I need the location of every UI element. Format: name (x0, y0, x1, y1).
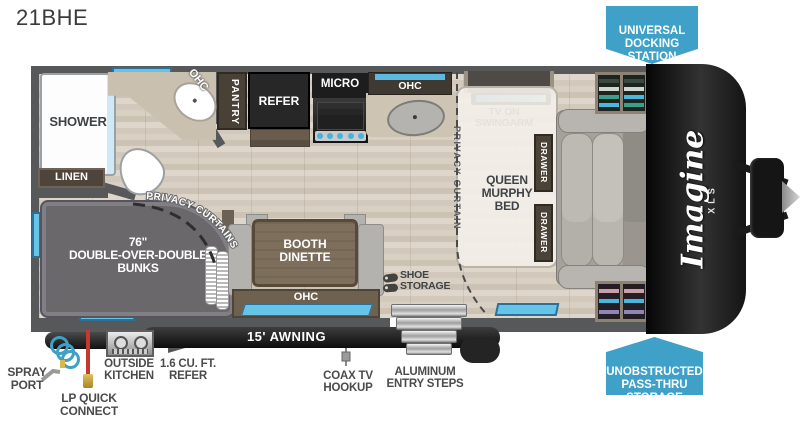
spray-port-label: SPRAY PORT (4, 366, 50, 392)
wardrobe-shelves (598, 75, 620, 111)
drawer-top: DRAWER (534, 134, 553, 192)
universal-docking-text: UNIVERSAL DOCKING STATION (619, 25, 685, 63)
burner-icon (134, 336, 148, 350)
shower-label: SHOWER (42, 115, 114, 129)
drawer-top-label: DRAWER (539, 142, 549, 183)
folded-clothes (599, 87, 619, 91)
dinette-window (241, 304, 373, 316)
burner-knob (327, 133, 333, 139)
brand-logo: Imagine XLS (676, 130, 717, 269)
refrigerator: REFER (248, 72, 310, 129)
folded-clothes (599, 103, 619, 107)
sofa (556, 110, 649, 286)
linen-label: LINEN (40, 171, 103, 183)
folded-clothes (599, 79, 619, 83)
burner-knob (337, 133, 343, 139)
burner-knob (317, 133, 323, 139)
dinette-ohc-label: OHC (234, 291, 378, 303)
micro-label: MICRO (312, 78, 368, 91)
folded-clothes (624, 299, 644, 303)
entry-step (401, 330, 457, 343)
spray-port-fitting (60, 360, 65, 368)
entry-steps-label: ALUMINUM ENTRY STEPS (378, 366, 472, 391)
propane-cover (750, 158, 784, 238)
folded-clothes (624, 79, 644, 83)
kitchen-ohc-label: OHC (369, 81, 451, 93)
lp-quick-connect-label: LP QUICK CONNECT (56, 392, 122, 418)
sofa-cushion (592, 133, 624, 267)
page-title: 21BHE (16, 5, 88, 31)
outside-refer-label: 1.6 CU. FT. REFER (158, 358, 218, 383)
oven-door (317, 102, 364, 130)
door-side-window (495, 303, 560, 316)
griddle-vents (112, 349, 148, 354)
lp-hose-icon (86, 330, 90, 376)
shoe-dot (385, 276, 388, 279)
entry-step (406, 343, 452, 355)
step-support (460, 337, 500, 363)
shoe-dot (385, 286, 388, 289)
wall-left (31, 66, 39, 332)
shoe-icon (383, 283, 399, 292)
folded-clothes (624, 103, 644, 107)
pass-thru-text: UNOBSTRUCTED PASS-THRU STORAGE (606, 366, 702, 404)
drawer-bottom: DRAWER (534, 204, 553, 262)
wardrobe-front-top (595, 72, 648, 114)
folded-clothes (599, 310, 619, 314)
pantry: PANTRY (217, 72, 247, 130)
burner-icon (114, 336, 128, 350)
outside-kitchen-label: OUTSIDE KITCHEN (100, 358, 158, 383)
wardrobe-shelves (623, 284, 645, 319)
wardrobe-shelves (623, 75, 645, 111)
folded-clothes (624, 87, 644, 91)
linen-cabinet: LINEN (38, 168, 105, 188)
awning-label: 15' AWNING (143, 330, 430, 344)
pass-thru-badge: UNOBSTRUCTED PASS-THRU STORAGE (606, 337, 703, 395)
range-oven (313, 98, 368, 143)
range-knob-strip (315, 131, 366, 141)
front-cap: Imagine XLS (646, 64, 746, 334)
folded-clothes (599, 289, 619, 293)
pantry-label: PANTRY (229, 79, 240, 125)
coax-jack-icon (342, 352, 350, 361)
shoe-storage-label: SHOE STORAGE (400, 270, 454, 293)
burner-knob (348, 133, 354, 139)
floorplan-canvas: 21BHE SHOWER LINEN OHC PANTRY REFER MICR… (0, 0, 800, 424)
folded-clothes (599, 95, 619, 99)
refer-base-cabinet (250, 129, 310, 147)
drawer-bottom-label: DRAWER (539, 212, 549, 253)
lp-fitting-icon (83, 374, 93, 388)
dinette-bench-right (358, 224, 384, 296)
coax-label: COAX TV HOOKUP (320, 370, 376, 395)
dinette-ohc: OHC (232, 289, 380, 318)
dinette-label: BOOTH DINETTE (255, 238, 355, 264)
hitch-coupler (782, 181, 800, 213)
entry-step (391, 304, 467, 317)
sofa-back (623, 131, 647, 267)
shower: SHOWER (40, 73, 116, 176)
folded-clothes (599, 299, 619, 303)
dinette-table: BOOTH DINETTE (252, 219, 358, 287)
outside-kitchen-griddle (106, 330, 154, 357)
privacy-curtain-label: PRIVACY CURTAIN (452, 126, 462, 230)
folded-clothes (624, 289, 644, 293)
entry-step (396, 317, 462, 330)
wall-bath-bottom (31, 188, 108, 198)
dinette-bench-left (228, 224, 252, 296)
brand-imagine: Imagine (676, 130, 711, 269)
microwave: MICRO (312, 73, 368, 98)
folded-clothes (624, 310, 644, 314)
kitchen-ohc: OHC (368, 72, 452, 95)
wardrobe-shelves (598, 284, 620, 319)
universal-docking-badge: UNIVERSAL DOCKING STATION (606, 6, 698, 64)
kitchen-sink-drain (413, 115, 417, 119)
sofa-cushion (561, 133, 593, 267)
folded-clothes (624, 95, 644, 99)
burner-knob (358, 133, 364, 139)
wardrobe-front-bottom (595, 281, 648, 322)
refer-label: REFER (250, 95, 308, 108)
bath-sink-drain (192, 98, 198, 104)
